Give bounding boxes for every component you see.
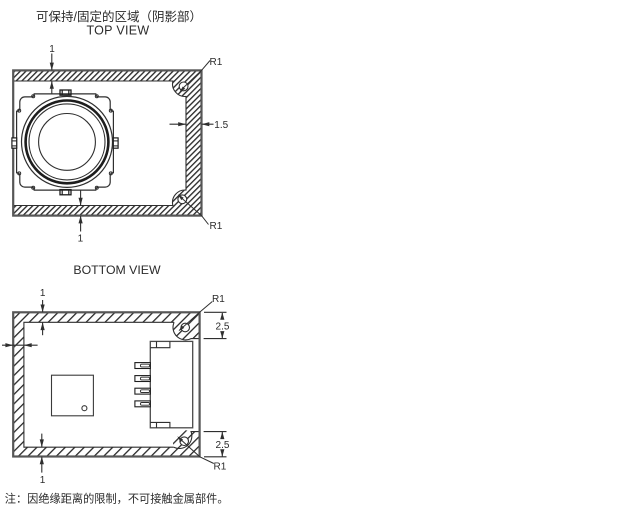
- svg-text:BOTTOM VIEW: BOTTOM VIEW: [73, 263, 161, 277]
- svg-text:1: 1: [49, 44, 55, 55]
- svg-text:TOP VIEW: TOP VIEW: [86, 24, 149, 38]
- svg-text:1.5: 1.5: [214, 120, 228, 131]
- svg-text:2.5: 2.5: [216, 322, 230, 333]
- svg-text:可保持/固定的区域（阴影部）: 可保持/固定的区域（阴影部）: [36, 9, 202, 24]
- svg-text:注：因绝缘距离的限制，不可接触金属部件。: 注：因绝缘距离的限制，不可接触金属部件。: [5, 492, 229, 506]
- svg-text:1: 1: [40, 288, 46, 299]
- svg-text:2.5: 2.5: [216, 440, 230, 451]
- svg-text:R1: R1: [210, 57, 223, 68]
- svg-text:1: 1: [78, 234, 84, 245]
- svg-text:R1: R1: [210, 221, 223, 232]
- svg-text:R1: R1: [214, 462, 227, 473]
- svg-text:R1: R1: [212, 294, 225, 305]
- svg-text:1: 1: [40, 475, 46, 486]
